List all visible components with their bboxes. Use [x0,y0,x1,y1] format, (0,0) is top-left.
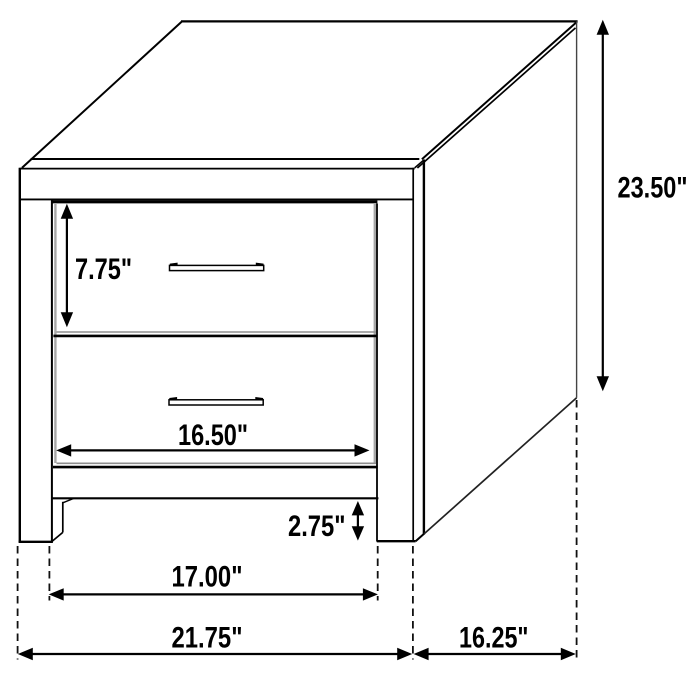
svg-text:2.75": 2.75" [288,510,346,543]
svg-text:7.75": 7.75" [75,253,132,286]
svg-text:16.50": 16.50" [178,419,248,452]
svg-text:16.25": 16.25" [459,622,529,655]
svg-text:17.00": 17.00" [172,561,243,594]
svg-text:21.75": 21.75" [172,622,243,655]
svg-text:23.50": 23.50" [618,172,688,205]
